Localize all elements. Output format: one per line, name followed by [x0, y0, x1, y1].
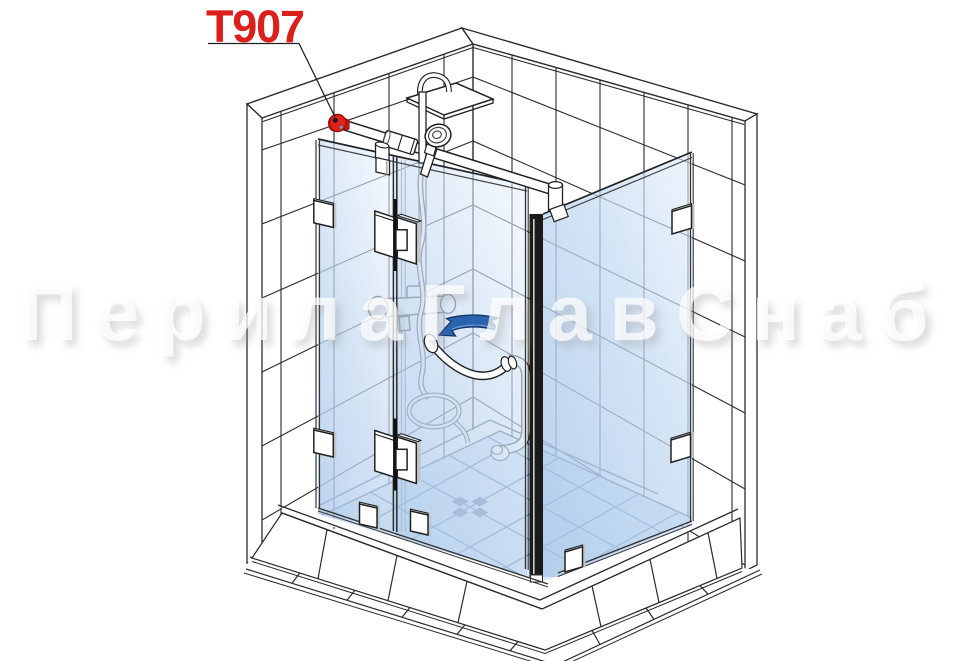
svg-text:T907: T907: [206, 1, 304, 52]
svg-text:ПерилаГлавСнаб: ПерилаГлавСнаб: [20, 268, 946, 357]
